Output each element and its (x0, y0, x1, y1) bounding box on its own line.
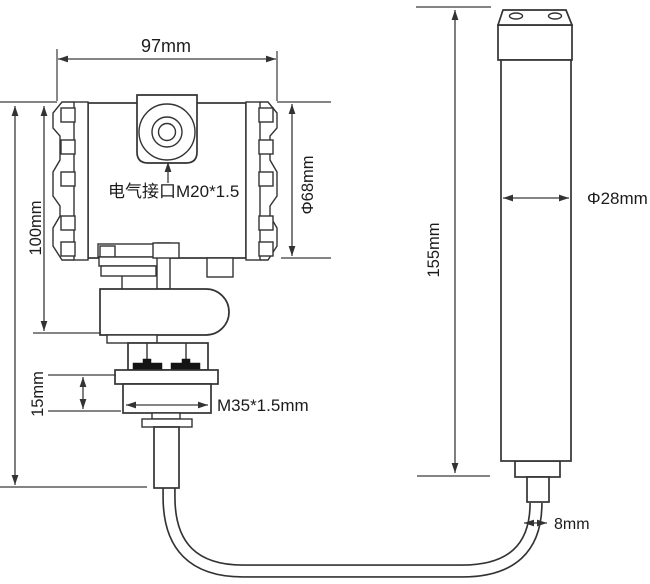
dimension-lines (0, 7, 569, 523)
cable-outline (169, 486, 536, 571)
connection-cable (169, 486, 536, 571)
right-fin (259, 216, 273, 230)
bracket-bar (101, 266, 156, 276)
flange-plate (115, 370, 218, 384)
label-process-thread: M35*1.5mm (217, 396, 309, 415)
label-head-height: 100mm (27, 200, 45, 255)
label-head-diameter: Φ68mm (299, 155, 317, 214)
bolt-head (171, 363, 200, 370)
label-gland-height: 15mm (29, 371, 47, 417)
probe-cap (498, 25, 572, 60)
right-fin (259, 172, 273, 186)
label-cable-diameter: 8mm (554, 516, 590, 533)
probe-body (501, 60, 571, 461)
bolt-nub (182, 359, 190, 363)
stem-step (152, 413, 180, 419)
probe-cap-hole (510, 13, 523, 19)
cable-fill (169, 486, 536, 571)
transmitter-head (53, 95, 277, 488)
left-fin (61, 108, 75, 122)
stem-washer (142, 419, 192, 427)
port-circle-inner (159, 124, 176, 141)
thread-gland (123, 384, 211, 413)
bracket-column-cap (153, 243, 179, 258)
bracket-right-block (207, 258, 233, 277)
label-probe-diameter: Φ28mm (587, 189, 648, 208)
right-fin (259, 108, 273, 122)
right-cover-strip (246, 102, 260, 260)
probe (498, 10, 572, 502)
bracket-tab (100, 246, 115, 257)
cable-stem (154, 427, 179, 488)
label-electrical-port: 电气接口M20*1.5 (108, 182, 239, 201)
housing-step (107, 335, 157, 343)
left-cover-strip (74, 102, 88, 260)
bolt-nub (143, 359, 151, 363)
left-ribbed-cover (53, 102, 88, 260)
probe-cable-neck (527, 477, 549, 502)
dimension-drawing: 97mm 100mm 15mm 电气接口M20*1.5 Φ68mm M35*1.… (0, 0, 650, 584)
right-fin (259, 242, 273, 256)
left-fin (61, 140, 75, 154)
left-fin (61, 216, 75, 230)
right-ribbed-cover (246, 102, 277, 260)
probe-bottom-step (515, 461, 560, 477)
label-head-width: 97mm (141, 36, 191, 56)
bolt-head (133, 363, 162, 370)
right-fin (259, 140, 273, 154)
left-fin (61, 172, 75, 186)
drawing-canvas: 97mm 100mm 15mm 电气接口M20*1.5 Φ68mm M35*1.… (0, 0, 650, 584)
sensor-housing (100, 289, 229, 335)
label-probe-length: 155mm (425, 222, 443, 277)
probe-cap-hole (549, 13, 562, 19)
left-fin (61, 242, 75, 256)
bracket-bar (99, 257, 158, 266)
process-connection (115, 343, 218, 488)
